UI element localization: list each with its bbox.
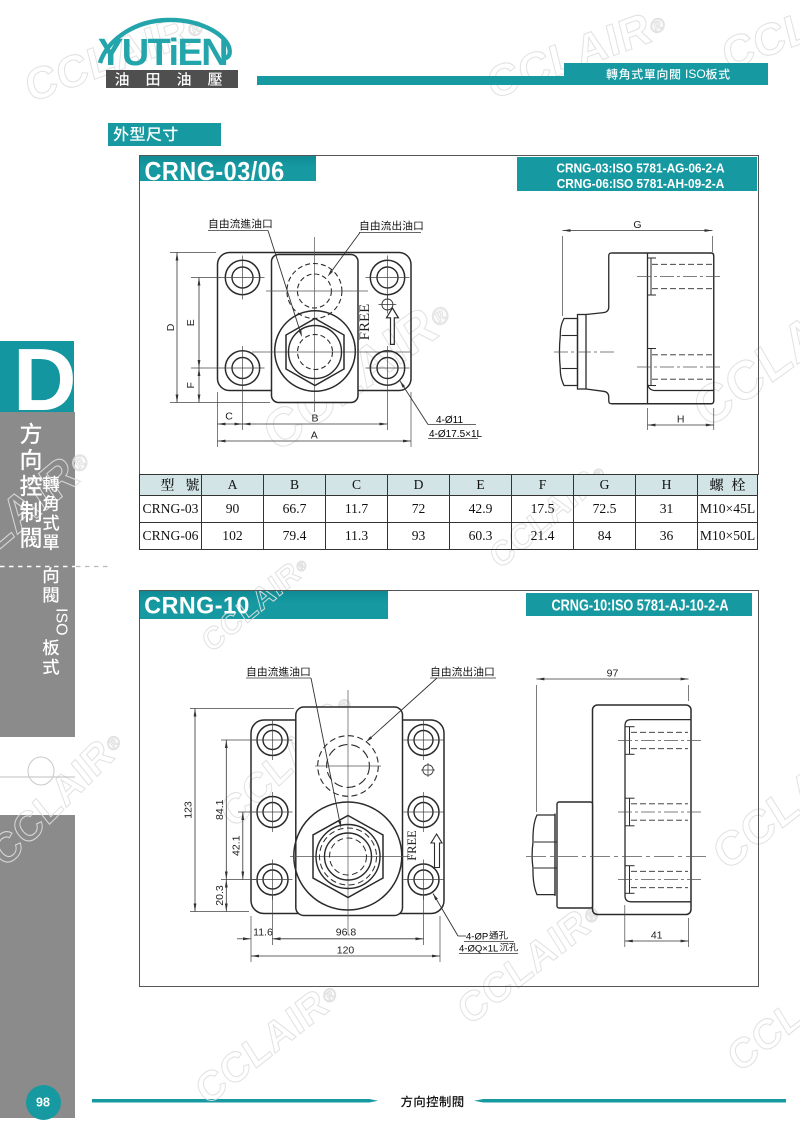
svg-text:120: 120 bbox=[337, 945, 355, 957]
svg-text:CRNG-03:ISO 5781-AG-06-2-A: CRNG-03:ISO 5781-AG-06-2-A bbox=[556, 161, 724, 176]
svg-text:96.8: 96.8 bbox=[336, 927, 357, 939]
svg-text:FREE: FREE bbox=[405, 830, 419, 861]
svg-text:B: B bbox=[311, 413, 318, 425]
svg-text:FREE: FREE bbox=[357, 304, 373, 341]
svg-text:G: G bbox=[633, 219, 641, 231]
svg-text:4-ØP: 4-ØP bbox=[466, 932, 488, 943]
svg-text:CRNG-10:ISO 5781-AJ-10-2-A: CRNG-10:ISO 5781-AJ-10-2-A bbox=[551, 597, 728, 614]
svg-text:E: E bbox=[185, 319, 197, 326]
svg-text:20.3: 20.3 bbox=[214, 885, 226, 906]
svg-text:CRNG-10: CRNG-10 bbox=[144, 593, 250, 619]
svg-text:98: 98 bbox=[36, 1096, 50, 1110]
svg-text:CRNG-06:ISO 5781-AH-09-2-A: CRNG-06:ISO 5781-AH-09-2-A bbox=[557, 176, 725, 191]
svg-text:C: C bbox=[225, 411, 233, 423]
svg-text:4-ØQ×1L: 4-ØQ×1L bbox=[459, 944, 498, 955]
svg-text:A: A bbox=[311, 430, 318, 442]
svg-text:11.6: 11.6 bbox=[253, 927, 273, 939]
svg-text:84.1: 84.1 bbox=[214, 799, 226, 820]
svg-text:F: F bbox=[185, 382, 197, 388]
svg-text:ISO: ISO bbox=[53, 608, 70, 636]
svg-text:CRNG-03/06: CRNG-03/06 bbox=[145, 158, 285, 186]
svg-text:41: 41 bbox=[651, 930, 663, 942]
svg-text:ISO: ISO bbox=[685, 67, 706, 81]
svg-text:123: 123 bbox=[183, 801, 195, 819]
svg-text:97: 97 bbox=[607, 668, 619, 680]
svg-text:42.1: 42.1 bbox=[230, 835, 242, 856]
svg-text:D: D bbox=[165, 323, 177, 331]
svg-text:H: H bbox=[677, 414, 685, 426]
svg-text:4-Ø11: 4-Ø11 bbox=[436, 415, 463, 426]
